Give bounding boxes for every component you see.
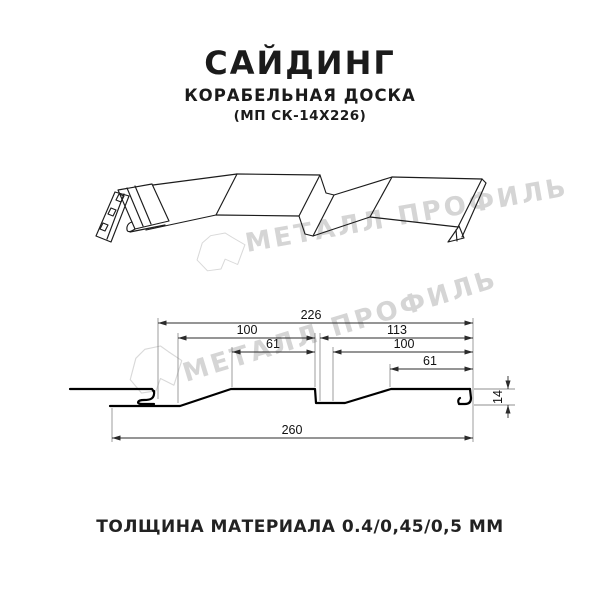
dim-label-profile-height: 14 [491, 390, 505, 404]
dim-label-board1-flat: 61 [266, 337, 280, 351]
brand-logo-icon [130, 346, 182, 393]
dim-label-board2-flat: 61 [423, 354, 437, 368]
dim-label-board2-span: 113 [387, 323, 407, 337]
brand-watermark-lower: МЕТАЛЛ ПРОФИЛЬ [130, 264, 501, 393]
brand-watermark-text: МЕТАЛЛ ПРОФИЛЬ [179, 264, 501, 388]
brand-logo-icon [197, 233, 245, 271]
dim-label-overall-width: 226 [301, 308, 322, 322]
product-drawing-card: САЙДИНГ КОРАБЕЛЬНАЯ ДОСКА (МП СК-14Х226)… [0, 0, 600, 600]
dim-label-board2-width: 100 [394, 337, 415, 351]
material-thickness-note: ТОЛЩИНА МАТЕРИАЛА 0.4/0,45/0,5 ММ [0, 517, 600, 537]
dim-label-board1-width: 100 [237, 323, 258, 337]
brand-watermark-upper: МЕТАЛЛ ПРОФИЛЬ [197, 172, 571, 270]
dim-label-total-width: 260 [282, 423, 303, 437]
technical-drawing: МЕТАЛЛ ПРОФИЛЬ МЕТАЛЛ ПРОФИЛЬ [0, 0, 600, 600]
cross-section-profile [70, 389, 471, 406]
